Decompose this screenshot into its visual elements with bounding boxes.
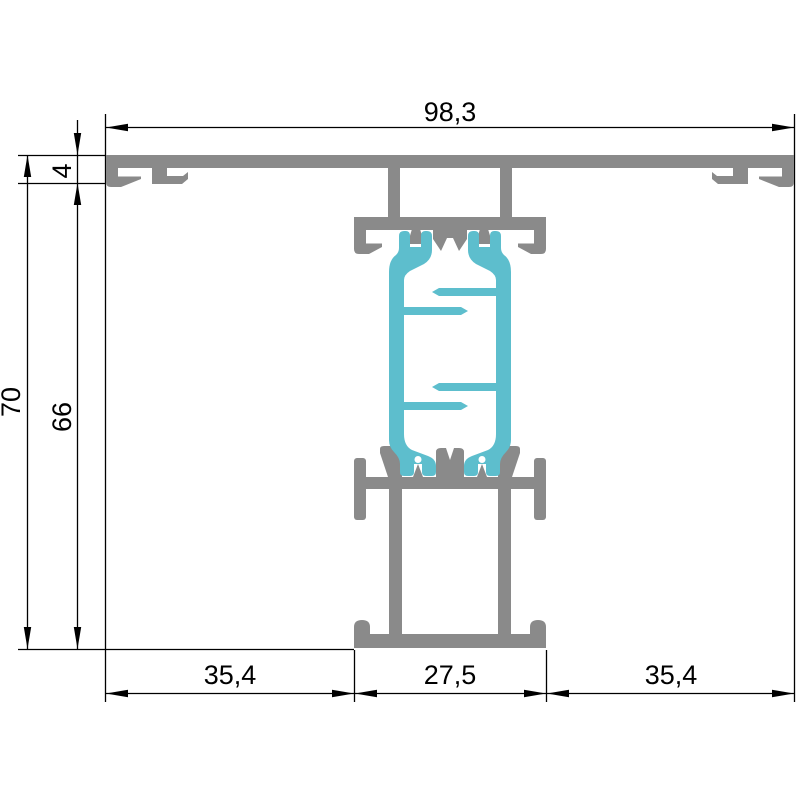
profile-cross-section-drawing: 98,3 70 66 4 35,4 27,5 35,4: [0, 0, 800, 800]
label-body-height: 66: [47, 402, 77, 432]
thermal-strut-left: [389, 231, 468, 476]
aluminum-profile: [106, 155, 794, 648]
arrow-body-height-bottom: [74, 627, 81, 649]
thermal-strut-right: [432, 231, 511, 476]
label-flange-height: 4: [47, 163, 77, 178]
technical-drawing-canvas: 98,3 70 66 4 35,4 27,5 35,4: [0, 0, 800, 800]
arrow-total-width-right: [772, 124, 794, 131]
flange-end-right-inner-leg: [712, 167, 748, 184]
lower-cap-left: [354, 458, 366, 520]
lower-cap-right: [534, 458, 546, 520]
flange-end-right-outer-hook: [759, 167, 794, 187]
label-total-width: 98,3: [424, 97, 477, 127]
tube-wall-left: [389, 489, 402, 635]
flange-end-left: [106, 167, 188, 187]
thermal-strut-left-hole: [415, 456, 422, 463]
bottom-flange: [354, 634, 546, 648]
bottom-nub-left: [354, 620, 370, 634]
label-overall-height: 70: [0, 387, 26, 417]
arrow-bottom-right-b: [772, 690, 794, 697]
arrow-total-width-left: [106, 124, 128, 131]
dimension-arrows: [24, 124, 794, 697]
label-bottom-left-width: 35,4: [204, 660, 257, 690]
arrow-bottom-left-b: [332, 690, 354, 697]
label-bottom-center-width: 27,5: [424, 660, 477, 690]
arrow-bottom-center-a: [355, 690, 377, 697]
arrow-flange-height-top: [74, 133, 81, 155]
arrow-overall-height-top: [24, 155, 31, 177]
arrow-overall-height-bottom: [24, 627, 31, 649]
upper-web-right: [500, 167, 512, 218]
upper-bar-hook-left: [354, 229, 382, 254]
arrow-bottom-center-b: [524, 690, 546, 697]
lower-bar: [366, 477, 534, 489]
arrow-bottom-left-a: [106, 690, 128, 697]
dimension-labels: 98,3 70 66 4 35,4 27,5 35,4: [0, 97, 697, 690]
label-bottom-right-width: 35,4: [645, 660, 698, 690]
flange-end-left-outer-hook: [106, 167, 141, 187]
upper-bar-hook-right: [518, 229, 546, 254]
upper-bar: [354, 217, 546, 230]
lower-tooth-small-right: [477, 464, 487, 477]
flange-end-left-inner-leg: [152, 167, 188, 184]
upper-web-left: [388, 167, 400, 218]
arrow-bottom-right-a: [547, 690, 569, 697]
top-flange: [106, 155, 794, 168]
lower-tooth-middle: [436, 448, 464, 477]
thermal-strut-right-hole: [479, 456, 486, 463]
tube-wall-right: [498, 489, 511, 635]
upper-tooth-middle: [433, 229, 467, 251]
lower-tooth-small-left: [413, 464, 423, 477]
flange-end-right: [712, 167, 794, 187]
arrow-body-height-top: [74, 183, 81, 205]
bottom-nub-right: [530, 620, 546, 634]
thermal-break-struts: [389, 231, 511, 476]
